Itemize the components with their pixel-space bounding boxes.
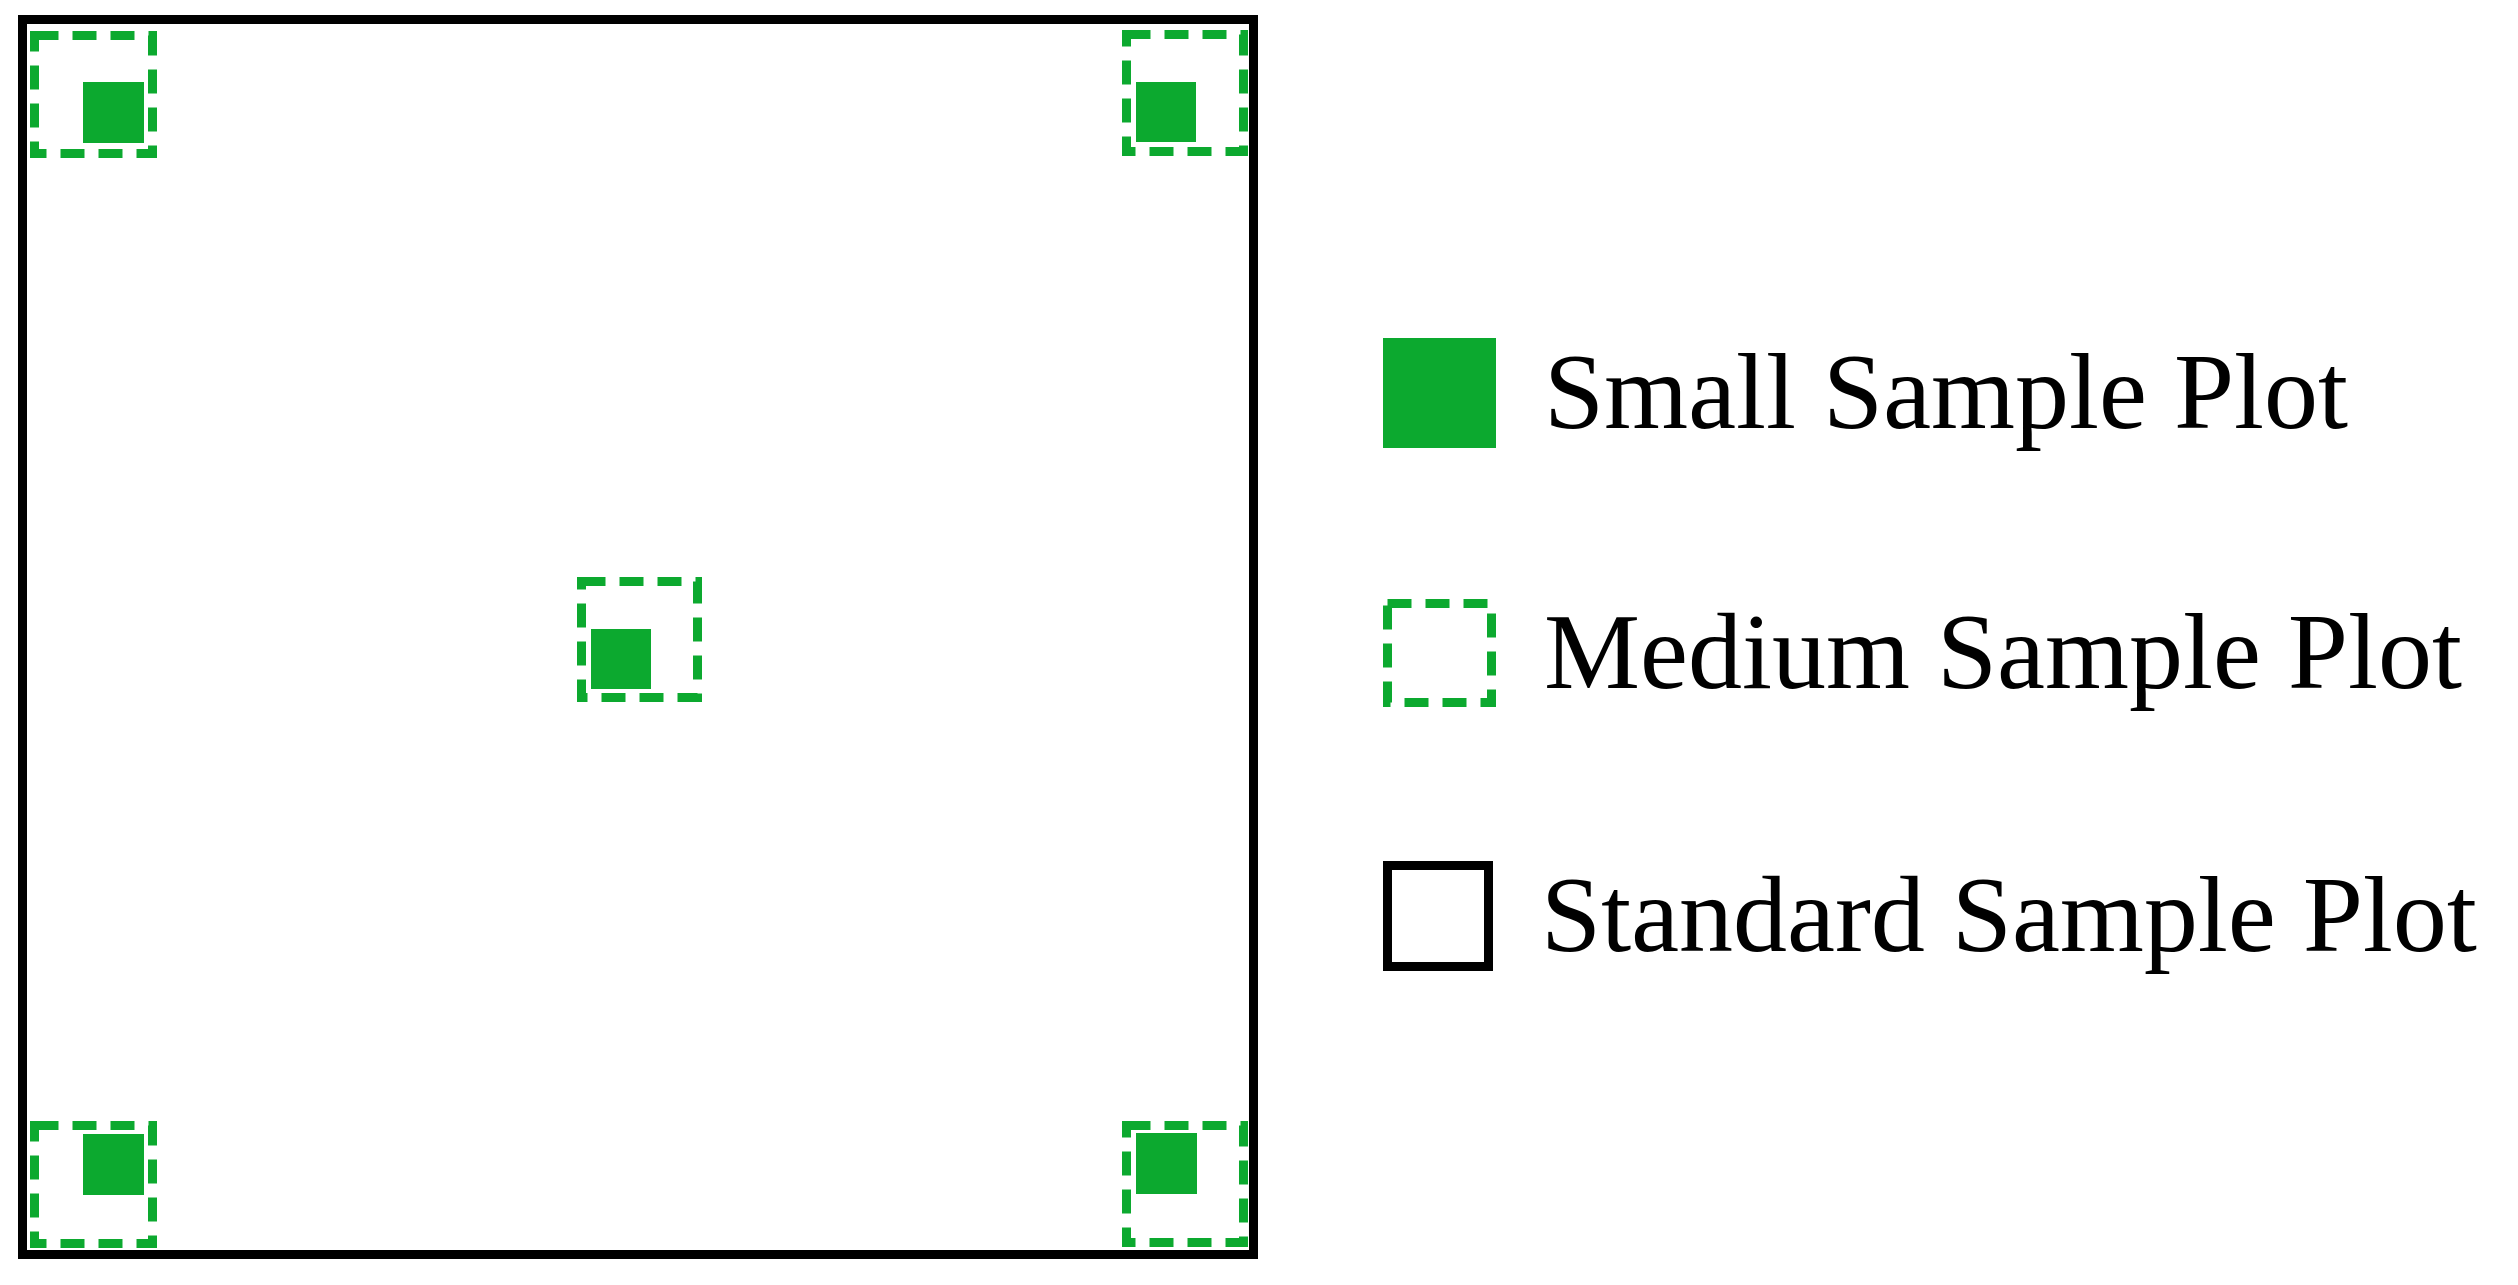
legend-label-small: Small Sample Plot [1544, 339, 2348, 447]
legend-item-standard-sample-plot: Standard Sample Plot [1383, 861, 2477, 971]
medium-sample-plot-swatch-icon [1383, 599, 1496, 707]
small-sample-plot-marker-center [591, 629, 651, 689]
small-sample-plot-marker-top-left [83, 82, 144, 143]
small-sample-plot-marker-bottom-left [83, 1134, 144, 1195]
legend-item-medium-sample-plot: Medium Sample Plot [1383, 599, 2462, 707]
legend-label-standard: Standard Sample Plot [1541, 862, 2477, 970]
standard-sample-plot-swatch-icon [1383, 861, 1493, 971]
small-sample-plot-swatch-icon [1383, 338, 1496, 448]
legend-label-medium: Medium Sample Plot [1544, 599, 2462, 707]
small-sample-plot-marker-top-right [1136, 82, 1196, 142]
small-sample-plot-marker-bottom-right [1136, 1133, 1197, 1194]
legend-item-small-sample-plot: Small Sample Plot [1383, 338, 2348, 448]
figure: Small Sample Plot Medium Sample Plot Sta… [0, 0, 2518, 1285]
